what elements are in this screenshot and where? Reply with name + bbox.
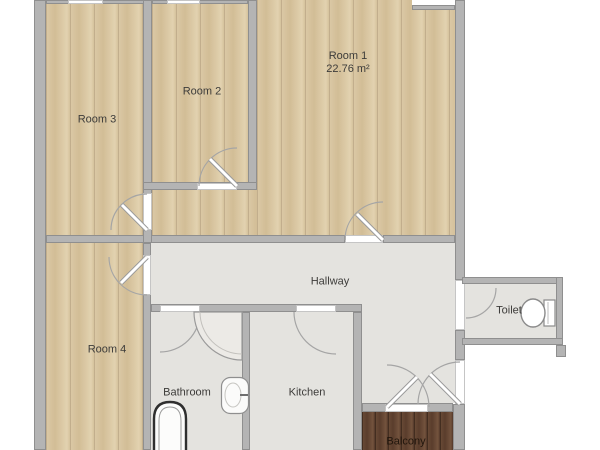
- top-wall-room1-step: [412, 5, 455, 10]
- room1-floor-extension: [152, 190, 257, 235]
- balcony-wall-right: [453, 404, 465, 450]
- toilet-door-leaf: [455, 280, 465, 330]
- room2-label: Room 2: [183, 86, 222, 99]
- bathroom-floor: [151, 312, 242, 450]
- entrance-door-leaf: [455, 360, 465, 404]
- room4-door-opening: [143, 255, 151, 295]
- kitchen-right-wall: [353, 312, 362, 450]
- outer-wall-right-mid: [455, 330, 465, 360]
- wall-bathroom-kitchen: [242, 312, 250, 450]
- room1-area: 22.76 m²: [326, 63, 369, 76]
- room1-name: Room 1: [326, 50, 369, 63]
- hallway-top-wall-left: [46, 235, 345, 243]
- room1-label: Room 1 22.76 m²: [326, 50, 369, 76]
- bathroom-label: Bathroom: [163, 387, 211, 400]
- balcony-label: Balcony: [386, 436, 425, 449]
- toilet-wall-stub: [556, 345, 566, 357]
- room4-label: Room 4: [88, 344, 127, 357]
- bathroom-door-opening: [160, 305, 200, 312]
- room1-door-opening: [345, 235, 383, 243]
- toilet-bottom-wall: [462, 338, 563, 345]
- toilet-right-wall: [556, 277, 563, 345]
- outer-wall-left: [34, 0, 46, 450]
- room2-door-opening: [197, 183, 237, 190]
- toilet-label: Toilet: [496, 305, 522, 318]
- kitchen-door-opening: [296, 305, 336, 312]
- room3-window: [68, 0, 103, 4]
- room1-floor: [257, 0, 455, 235]
- room2-window: [167, 0, 200, 4]
- hallway-top-wall-right: [383, 235, 455, 243]
- room3-label: Room 3: [78, 114, 117, 127]
- outer-wall-right-upper: [455, 0, 465, 280]
- hallway-floor: [151, 243, 455, 304]
- balcony-door-leaf: [385, 404, 428, 412]
- room3-door-leaf: [143, 193, 152, 230]
- hallway-label: Hallway: [311, 276, 350, 289]
- kitchen-label: Kitchen: [289, 387, 326, 400]
- floor-plan: Room 1 22.76 m² Room 2 Room 3 Room 4 Hal…: [0, 0, 600, 450]
- toilet-top-wall: [462, 277, 563, 284]
- wall-room2-room1: [248, 0, 257, 190]
- kitchen-floor: [250, 312, 353, 450]
- hallway-floor-lower: [362, 304, 455, 403]
